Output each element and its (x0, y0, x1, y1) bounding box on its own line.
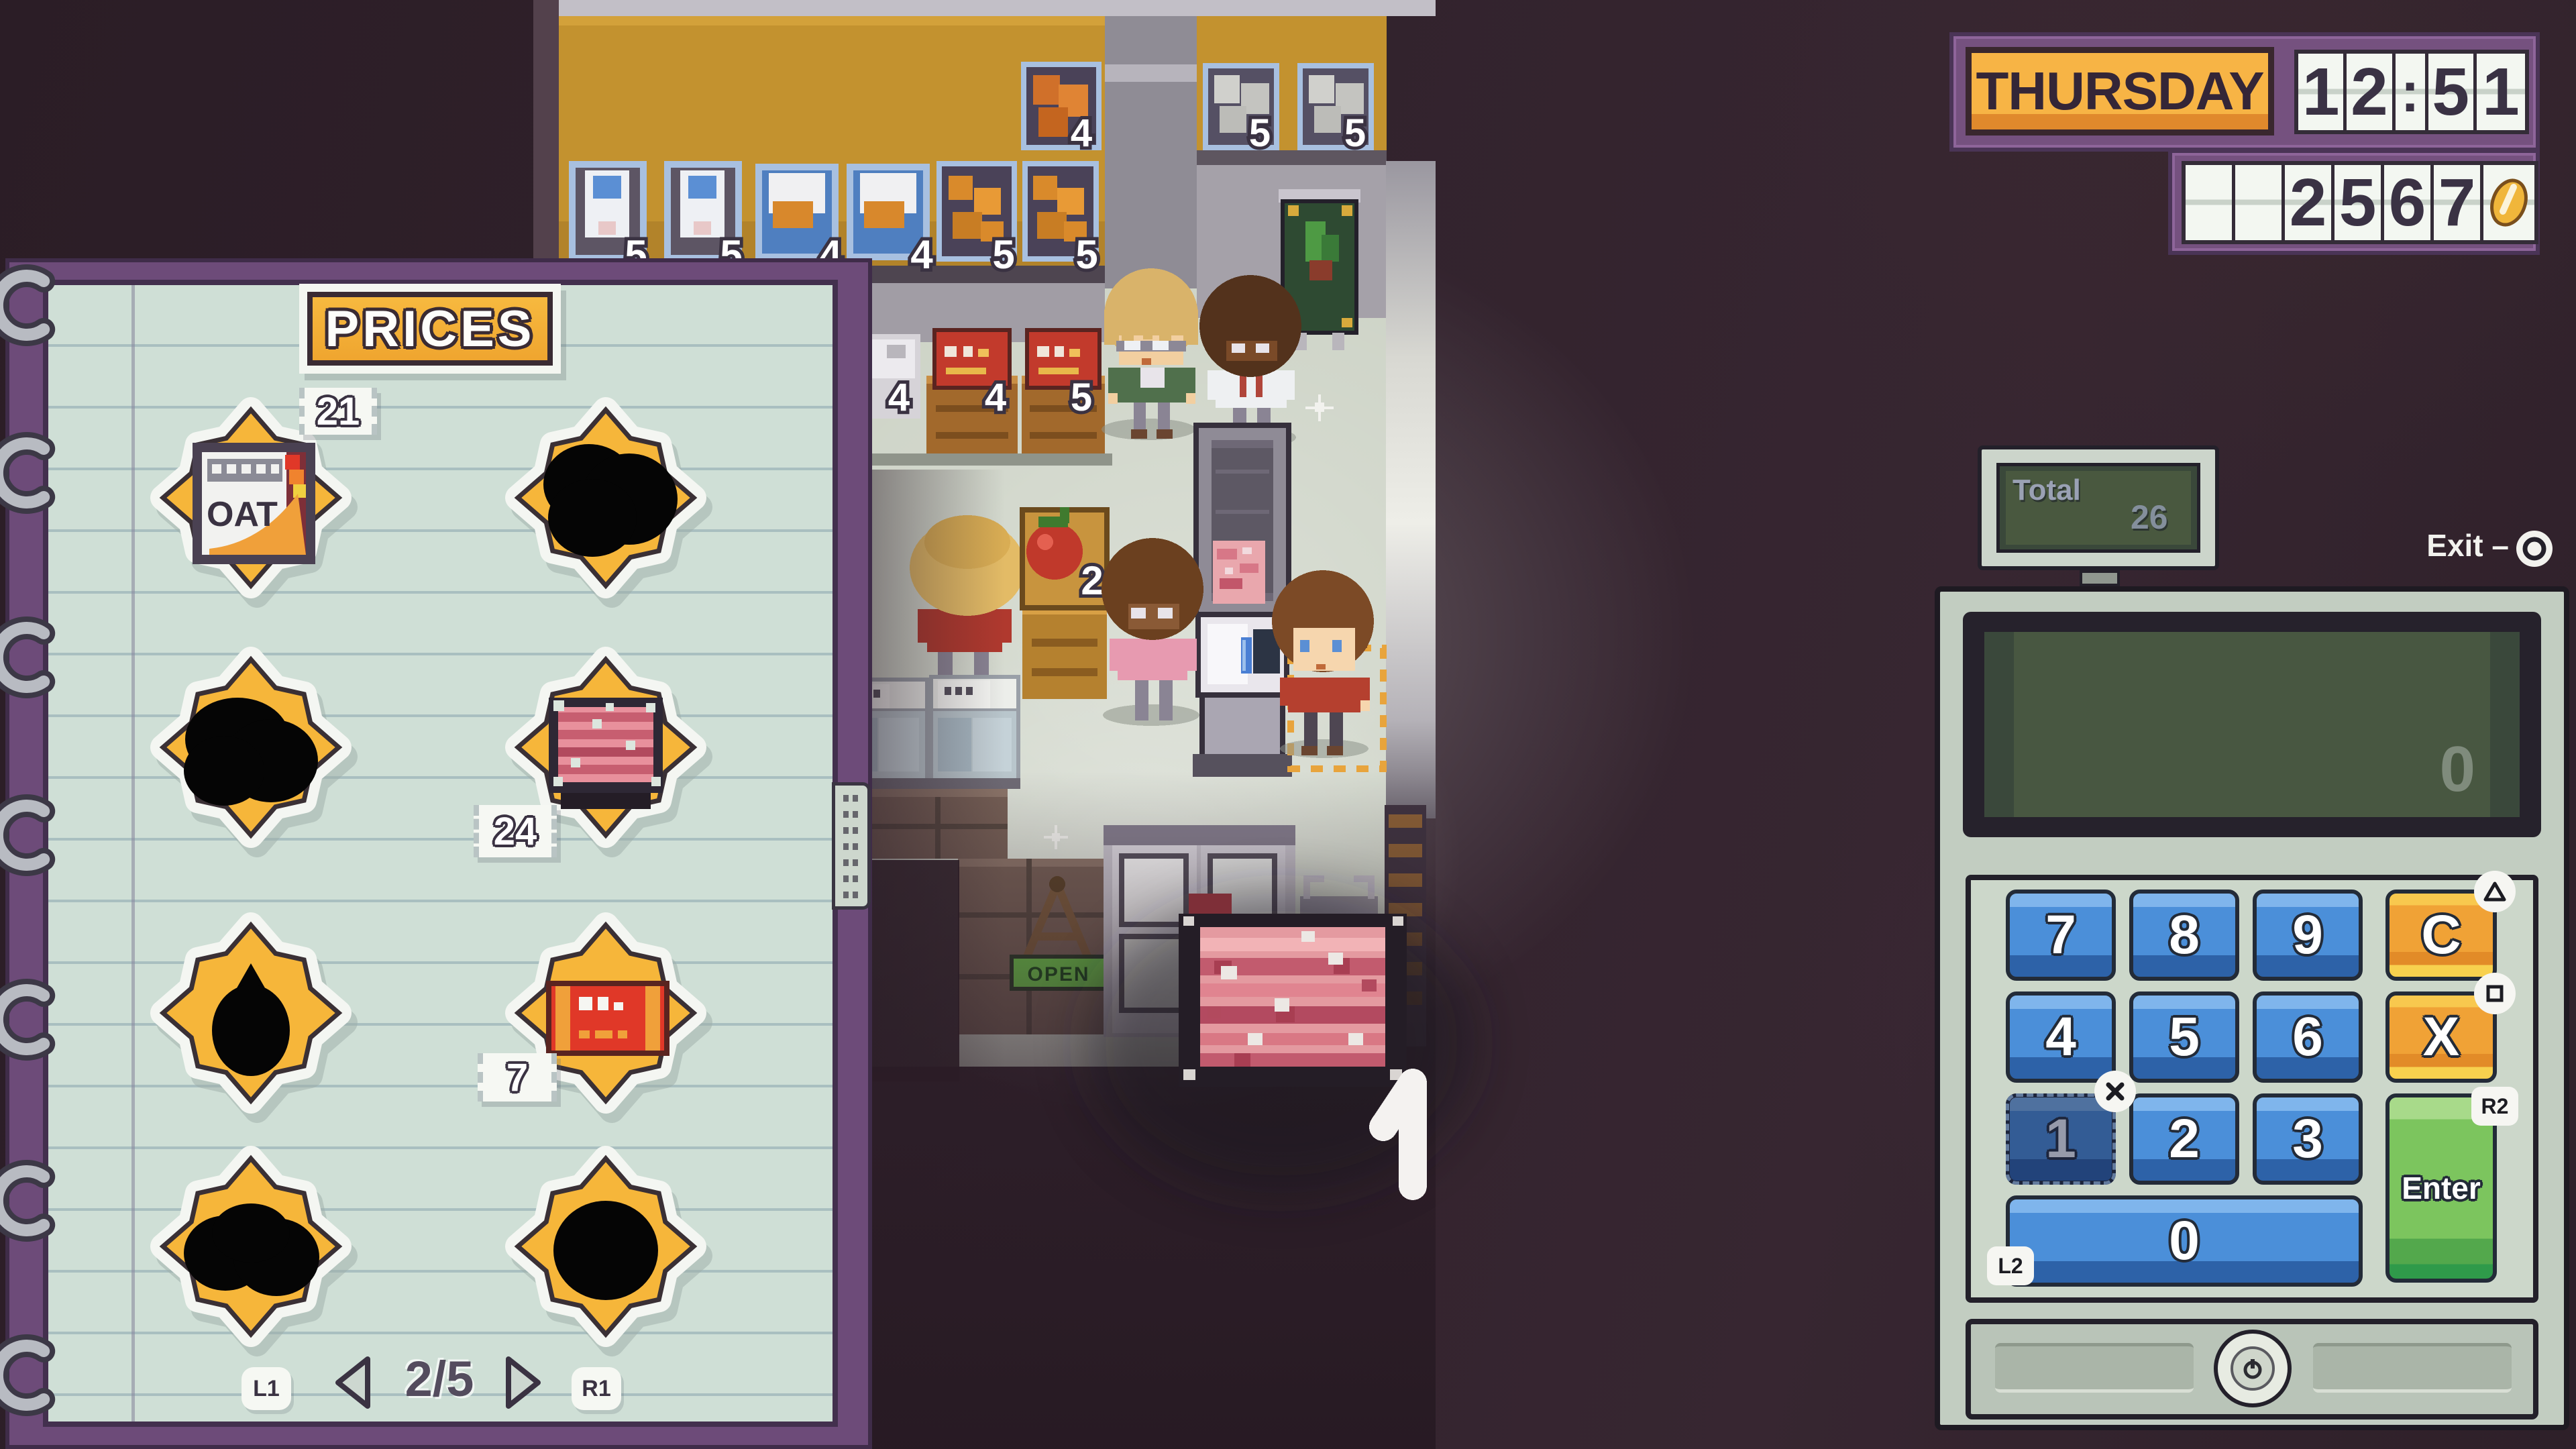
svg-text:4: 4 (985, 376, 1006, 419)
svg-text:2: 2 (1081, 558, 1103, 603)
svg-text:5: 5 (1344, 111, 1366, 155)
svg-text:4: 4 (1071, 111, 1092, 155)
svg-text:OAT: OAT (207, 495, 278, 534)
svg-text:4: 4 (888, 376, 910, 419)
svg-text:5: 5 (1075, 232, 1097, 277)
svg-text:5: 5 (1249, 111, 1271, 155)
svg-text:5: 5 (992, 232, 1014, 277)
svg-text:5: 5 (1071, 376, 1092, 419)
svg-text:4: 4 (910, 232, 933, 277)
